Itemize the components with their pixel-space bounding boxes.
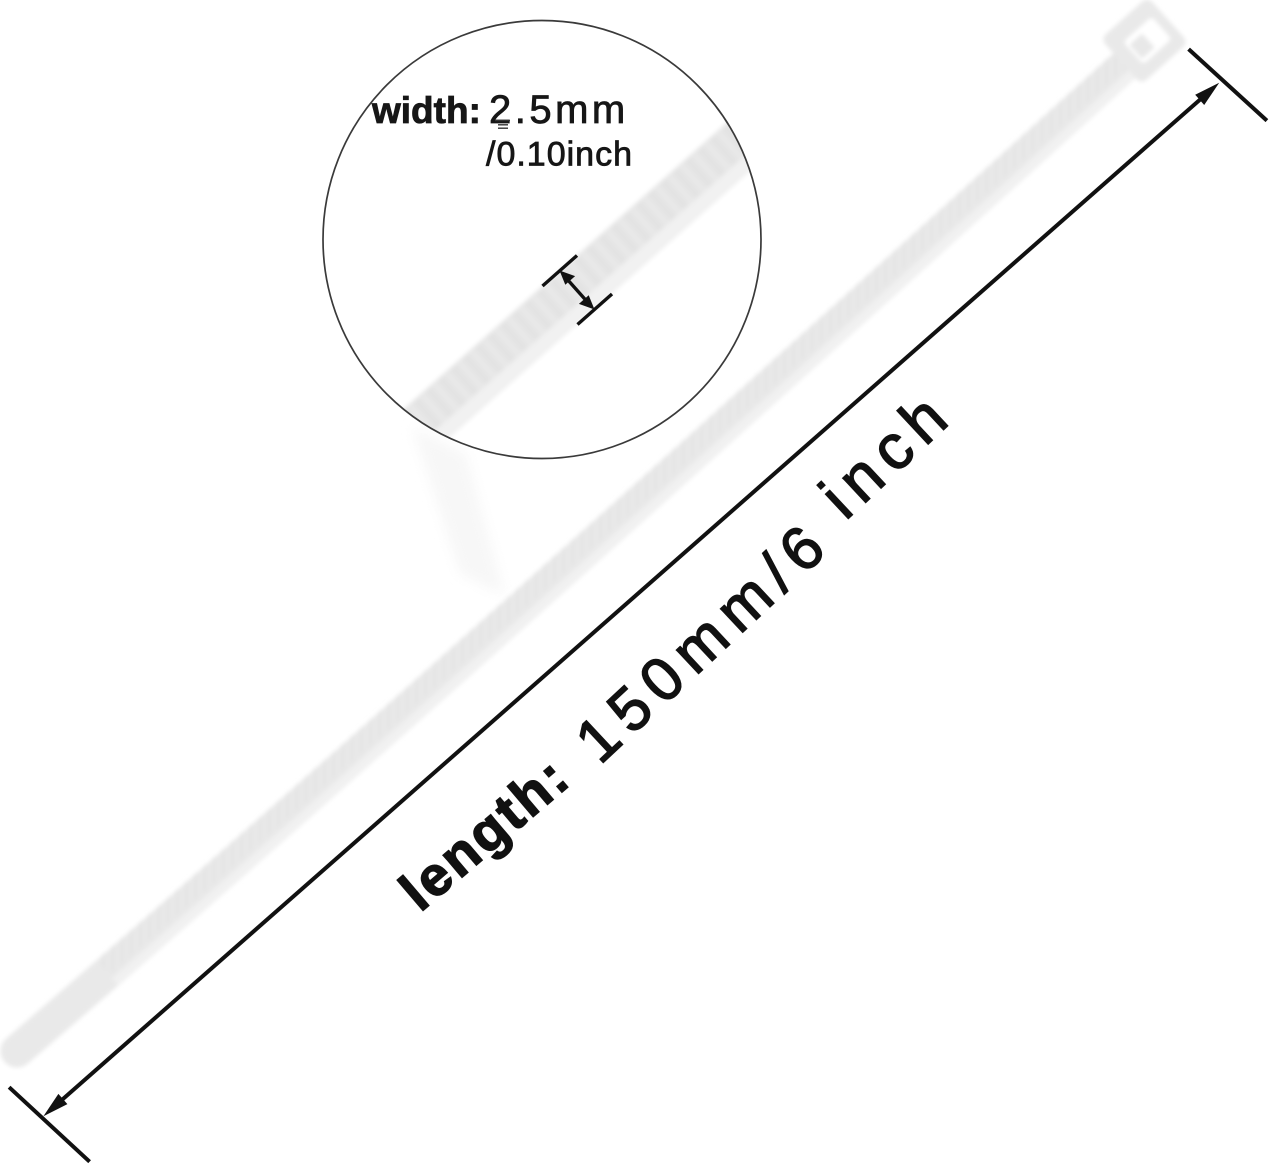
svg-text:width:: width: [371,90,481,131]
svg-text:2.5mm: 2.5mm [489,88,629,132]
svg-text:/0.10inch: /0.10inch [486,136,633,174]
